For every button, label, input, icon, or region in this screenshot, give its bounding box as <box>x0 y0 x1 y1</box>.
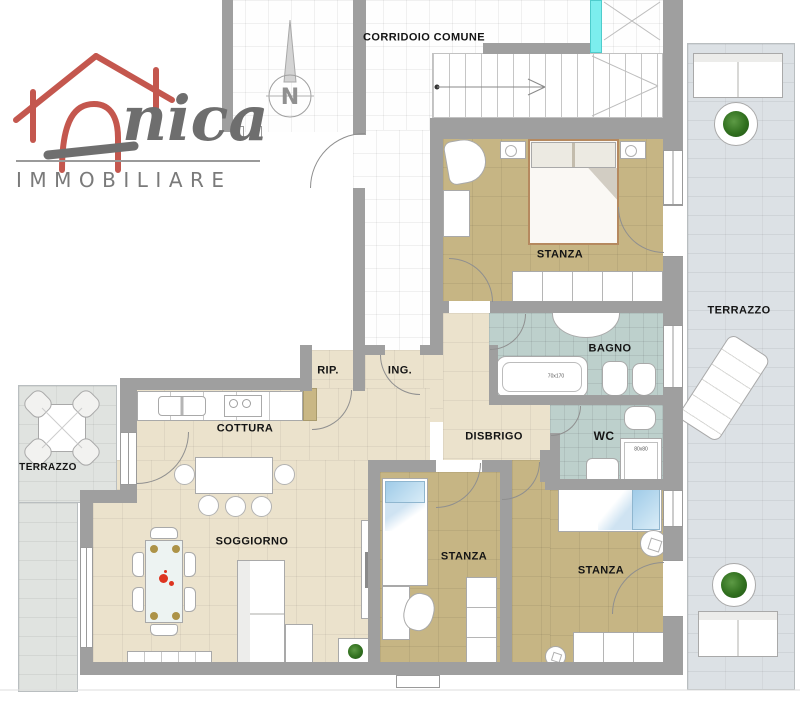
logo: nica IMMOBILIARE <box>10 42 268 194</box>
dining-chair <box>274 464 295 485</box>
wall <box>80 503 93 547</box>
terrace-bench <box>698 611 778 657</box>
label-bedroom-center: STANZA <box>441 552 487 563</box>
stove <box>224 395 262 417</box>
wall <box>368 472 380 662</box>
door-arc <box>310 133 365 188</box>
elevator-glass <box>590 0 602 53</box>
label-wc: WC <box>594 430 615 442</box>
wall <box>545 479 663 490</box>
wall <box>482 460 500 472</box>
dining-chair <box>251 496 272 517</box>
wc-toilet <box>624 406 656 430</box>
logo-underline <box>16 160 260 162</box>
living-chair <box>150 624 178 636</box>
wall <box>80 490 137 503</box>
living-chair <box>132 552 144 577</box>
terrace-sofa <box>693 53 783 98</box>
bedroom-desk <box>443 190 470 237</box>
wall <box>490 301 683 313</box>
wall <box>80 662 683 675</box>
living-chair <box>150 527 178 539</box>
wall <box>120 378 137 432</box>
window <box>663 150 683 205</box>
wall <box>365 345 385 355</box>
nightstand-left <box>500 141 526 159</box>
label-bathroom: BAGNO <box>589 344 632 355</box>
window <box>663 325 683 388</box>
label-bedroom-top: STANZA <box>537 250 583 261</box>
plant-icon <box>348 644 363 659</box>
nightstand-right <box>620 141 646 159</box>
wall <box>353 0 366 135</box>
living-chair <box>184 552 196 577</box>
living-chair <box>184 587 196 612</box>
window <box>663 490 683 527</box>
wall <box>357 378 365 390</box>
wall <box>353 188 365 391</box>
label-bedroom-right: STANZA <box>578 566 624 577</box>
toilet <box>602 361 628 396</box>
pillow <box>632 489 660 530</box>
shower <box>620 438 662 484</box>
wall <box>663 0 683 125</box>
kitchen-sink <box>158 396 206 416</box>
wardrobe-center-bedroom <box>466 577 497 668</box>
wall <box>483 43 590 54</box>
door-opening <box>663 560 683 617</box>
dining-chair <box>225 496 246 517</box>
logo-subtitle-text: IMMOBILIARE <box>16 168 232 192</box>
label-kitchen: COTTURA <box>217 424 274 435</box>
wardrobe-top-bedroom <box>512 271 663 302</box>
window <box>80 547 93 648</box>
dining-chair <box>174 464 195 485</box>
door-opening <box>663 205 683 257</box>
sofa <box>237 560 285 668</box>
duvet-fold <box>588 168 617 200</box>
bathtub <box>496 356 588 398</box>
label-terrace-left: TERRAZZO <box>19 463 77 473</box>
label-corridor: CORRIDOIO COMUNE <box>363 33 485 44</box>
label-entrance: ING. <box>388 366 412 377</box>
logo-script-text: nica <box>122 82 269 155</box>
dining-chair <box>198 495 219 516</box>
wall <box>368 460 436 472</box>
living-chair <box>132 587 144 612</box>
wall <box>430 118 683 139</box>
pillow <box>385 481 425 503</box>
terrace-door <box>120 432 137 485</box>
bidet <box>632 363 656 396</box>
bed-pillows <box>531 142 616 168</box>
label-hallway: DISBRIGO <box>465 432 523 443</box>
terrace-left-floor-lower <box>18 502 78 692</box>
label-living-room: SOGGIORNO <box>216 537 289 548</box>
label-terrace-right: TERRAZZO <box>707 306 770 317</box>
label-bathtub-size: 70x170 <box>548 375 564 380</box>
dining-table <box>195 457 273 494</box>
wall <box>540 450 550 482</box>
label-storage: RIP. <box>317 366 339 377</box>
wall <box>430 125 443 355</box>
glass-table <box>145 540 183 623</box>
wall <box>120 378 312 390</box>
door-opening <box>449 301 490 313</box>
wall <box>420 345 443 355</box>
stairwell <box>432 53 663 118</box>
plant-icon <box>721 572 747 598</box>
duvet-fold <box>598 489 632 530</box>
floor-plan: N <box>0 0 800 701</box>
label-shower-size: 80x80 <box>634 448 648 453</box>
plant-icon <box>723 111 749 137</box>
duvet-fold <box>385 503 425 531</box>
wall <box>489 395 663 405</box>
